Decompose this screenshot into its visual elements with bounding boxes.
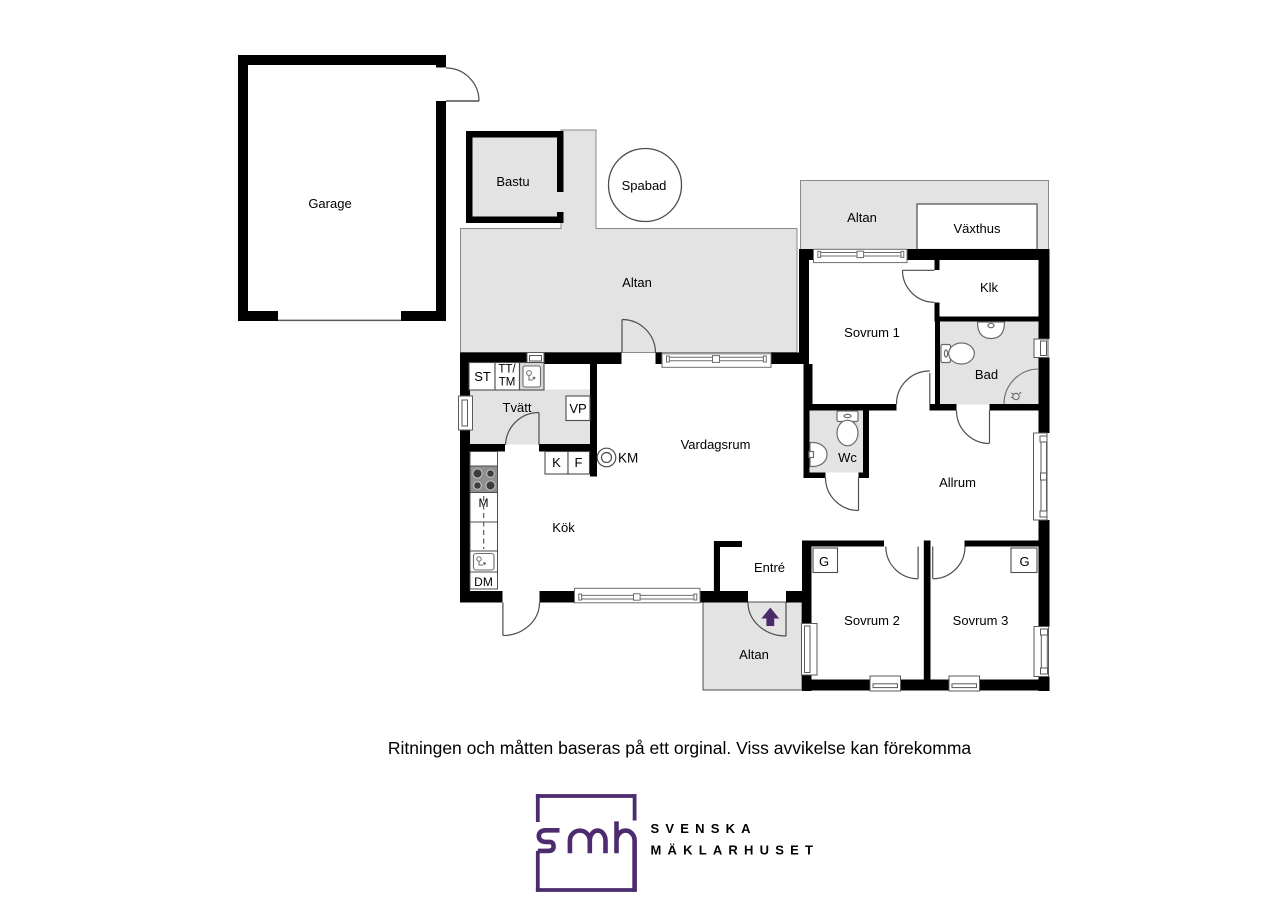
svg-text:Wc: Wc <box>838 450 857 465</box>
svg-text:TM: TM <box>499 377 516 389</box>
svg-text:Altan: Altan <box>622 275 652 290</box>
svg-text:VP: VP <box>569 401 586 416</box>
svg-text:G: G <box>1019 554 1029 569</box>
svg-text:Växthus: Växthus <box>954 221 1001 236</box>
svg-text:Ritningen och måtten baseras p: Ritningen och måtten baseras på ett orgi… <box>388 738 972 758</box>
svg-text:Bastu: Bastu <box>496 174 529 189</box>
svg-text:Sovrum 2: Sovrum 2 <box>844 613 900 628</box>
svg-text:K: K <box>552 455 561 470</box>
svg-text:Altan: Altan <box>847 210 877 225</box>
svg-text:Altan: Altan <box>739 647 769 662</box>
svg-text:DM: DM <box>474 575 493 589</box>
svg-text:TT/: TT/ <box>498 364 516 376</box>
svg-text:Entré: Entré <box>754 560 785 575</box>
svg-text:Sovrum 1: Sovrum 1 <box>844 325 900 340</box>
svg-text:Tvätt: Tvätt <box>503 400 532 415</box>
svg-text:SVENSKA: SVENSKA <box>651 821 757 836</box>
svg-text:Vardagsrum: Vardagsrum <box>681 437 751 452</box>
svg-text:F: F <box>575 455 583 470</box>
svg-text:KM: KM <box>618 451 638 466</box>
svg-text:MÄKLARHUSET: MÄKLARHUSET <box>651 843 820 858</box>
svg-text:Kök: Kök <box>552 520 575 535</box>
svg-text:G: G <box>819 554 829 569</box>
svg-text:Garage: Garage <box>308 196 351 211</box>
svg-text:Spabad: Spabad <box>622 178 667 193</box>
svg-text:ST: ST <box>474 369 491 384</box>
svg-text:Allrum: Allrum <box>939 475 976 490</box>
svg-text:Sovrum 3: Sovrum 3 <box>953 613 1009 628</box>
svg-text:Klk: Klk <box>980 280 999 295</box>
svg-text:Bad: Bad <box>975 367 998 382</box>
